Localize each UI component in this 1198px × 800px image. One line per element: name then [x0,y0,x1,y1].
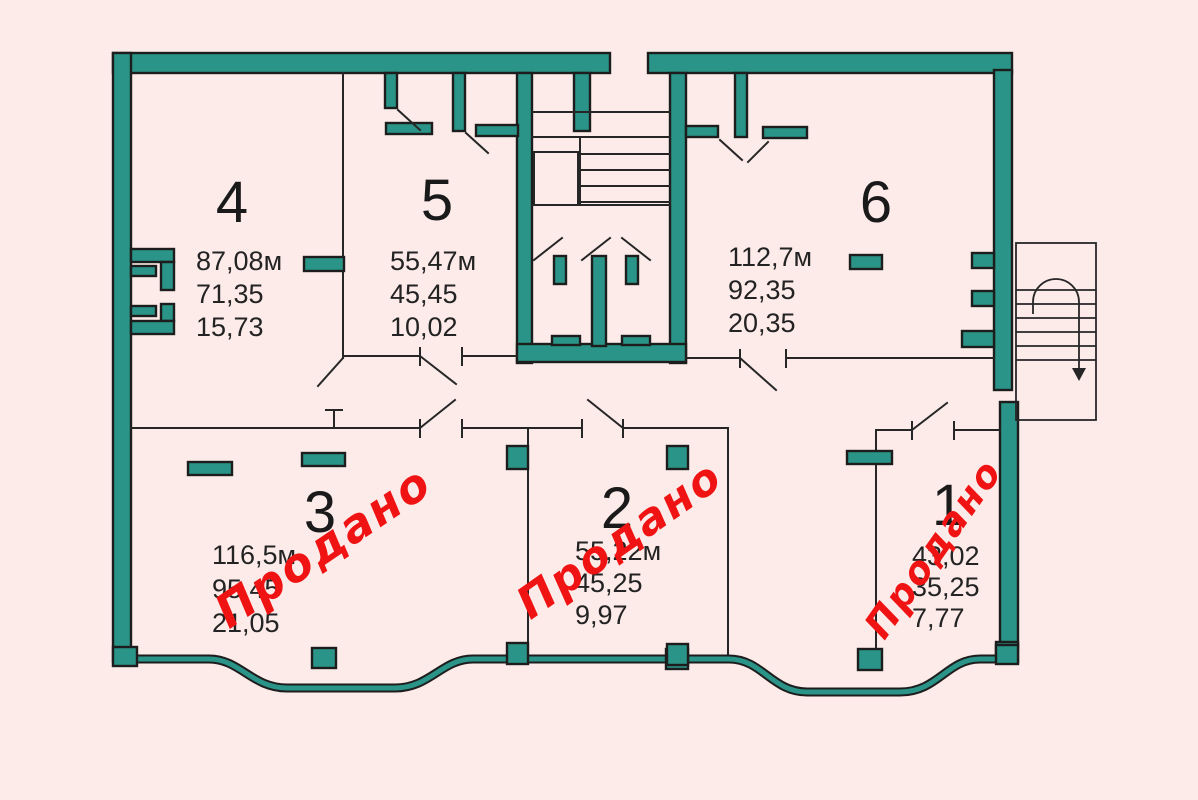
column [113,647,137,666]
area-living: 45,45 [390,279,458,309]
top-wall-left [113,53,610,73]
top-wall-right [648,53,1012,73]
floor-plan-canvas: 4 87,08м 71,35 15,73 5 55,47м 45,45 10,0… [0,0,1198,800]
bay-arm [131,321,174,334]
door-swing [588,400,623,428]
column [507,446,528,469]
area-kitchen: 20,35 [728,308,796,338]
unit-number: 5 [421,168,453,233]
niche-stub [735,73,747,137]
column [996,645,1018,664]
left-wall [113,53,131,662]
room-door-swings [318,356,947,430]
area-total: 112,7м [728,242,812,272]
door-swing [912,403,947,430]
niche-ledge [763,127,807,138]
stairwell-jamb [574,73,590,131]
door-swing [748,142,768,162]
area-total: 55,47м [390,246,476,276]
unit-number: 6 [860,170,892,235]
unit-3: 3 116,5м 95,45 21,05 Продано [205,455,441,639]
bay-return [161,304,174,321]
left-bay-niche [131,249,174,334]
area-kitchen: 15,73 [196,312,264,342]
wall-pier [847,451,892,464]
niche-ledge [386,123,432,134]
staircase-turn-arc [1033,279,1079,314]
bay-arm [131,249,174,262]
door-frame [626,256,638,284]
niche-stub [453,73,465,131]
bay-arm [131,266,156,276]
door-frame [554,256,566,284]
down-arrow-icon [1072,368,1086,381]
unit6-top-niches [686,73,807,162]
elevator-shaft [534,152,578,205]
door-swing [318,358,343,386]
unit-5: 5 55,47м 45,45 10,02 [390,168,476,342]
niche-stub [972,291,994,306]
door-swing [740,358,776,390]
niche-stub [385,73,397,108]
wall-pier [552,336,580,345]
area-kitchen: 10,02 [390,312,458,342]
area-living: 92,35 [728,275,796,305]
right-wall-lower [1000,402,1018,648]
right-wall-upper [994,70,1012,390]
unit-2: 2 55,22м 45,25 9,97 Продано [507,451,732,630]
bay-arm [131,306,156,316]
staircase-treads [1016,290,1096,360]
unit-4: 4 87,08м 71,35 15,73 [196,170,282,342]
niche-ledge [686,126,718,137]
door-swing [420,356,456,384]
unit-number: 4 [216,170,248,235]
stairwell-block [517,73,686,363]
column [667,644,688,665]
column [507,643,528,664]
unit-1: 1 43,02 35,25 7,77 Продано [856,451,1011,646]
niche-ledge [476,125,518,136]
area-kitchen: 7,77 [912,603,965,633]
wall-pier [850,255,882,269]
wall-pier [302,453,345,466]
unit6-right-niches [962,253,994,347]
area-kitchen: 9,97 [575,600,628,630]
bay-return [161,262,174,290]
staircase-icon [532,112,670,205]
exterior-staircase [1016,243,1096,420]
area-living: 71,35 [196,279,264,309]
niche-stub [972,253,994,268]
wall-pier [188,462,232,475]
wall-pier [304,257,344,271]
wall-pier [622,336,650,345]
unit5-top-niches [385,73,518,153]
stairwell-left-wall [517,73,532,363]
stairwell-right-wall [670,73,686,363]
door-swing [720,140,742,160]
vestibule-divider [592,256,606,346]
niche-stub [962,331,994,347]
door-swing [420,400,455,428]
column [312,648,336,668]
column [858,649,882,670]
area-total: 87,08м [196,246,282,276]
